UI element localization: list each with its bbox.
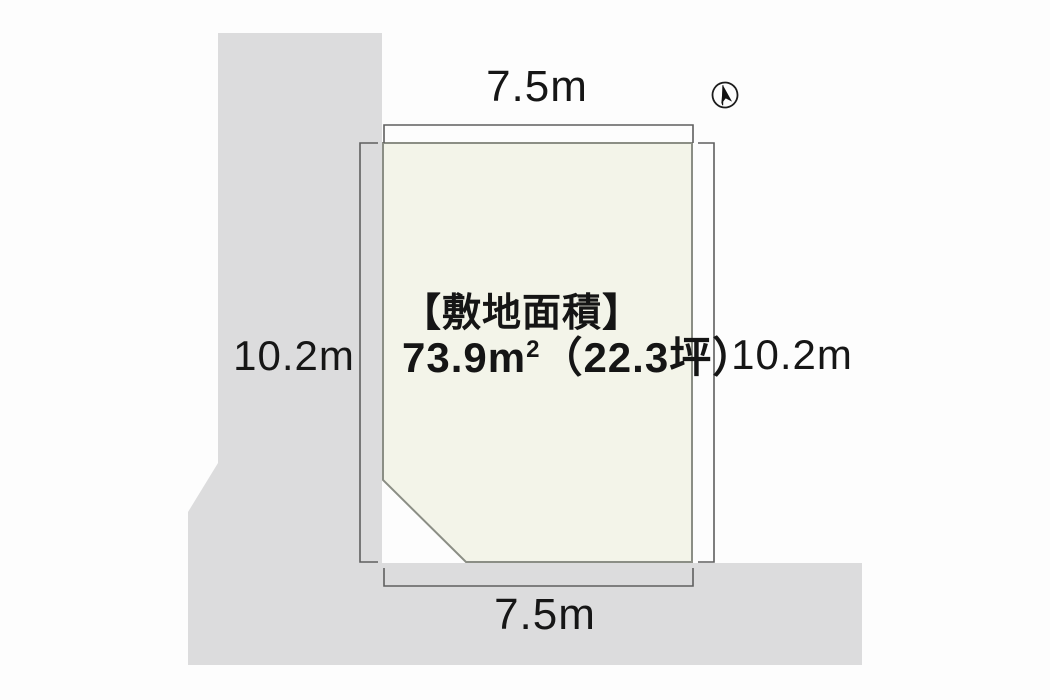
site-area-value: 73.9m2（22.3坪） [402, 337, 755, 379]
dimension-label-bottom-width: 7.5m [445, 590, 645, 640]
site-area-heading: 【敷地面積】 [402, 294, 755, 333]
dimension-bracket-top [384, 125, 693, 143]
dimension-label-top-width: 7.5m [437, 62, 637, 112]
site-area-value-superscript: 2 [526, 336, 540, 363]
site-area-annotation: 【敷地面積】 73.9m2（22.3坪） [402, 294, 755, 379]
dimension-label-left-depth: 10.2m [194, 331, 394, 381]
north-arrow-icon [710, 80, 740, 110]
site-area-value-main: 73.9m [402, 334, 526, 381]
site-area-value-tsubo: （22.3坪） [540, 334, 755, 381]
site-plan-diagram: 7.5m 7.5m 10.2m 10.2m 【敷地面積】 73.9m2（22.3… [0, 0, 1050, 700]
